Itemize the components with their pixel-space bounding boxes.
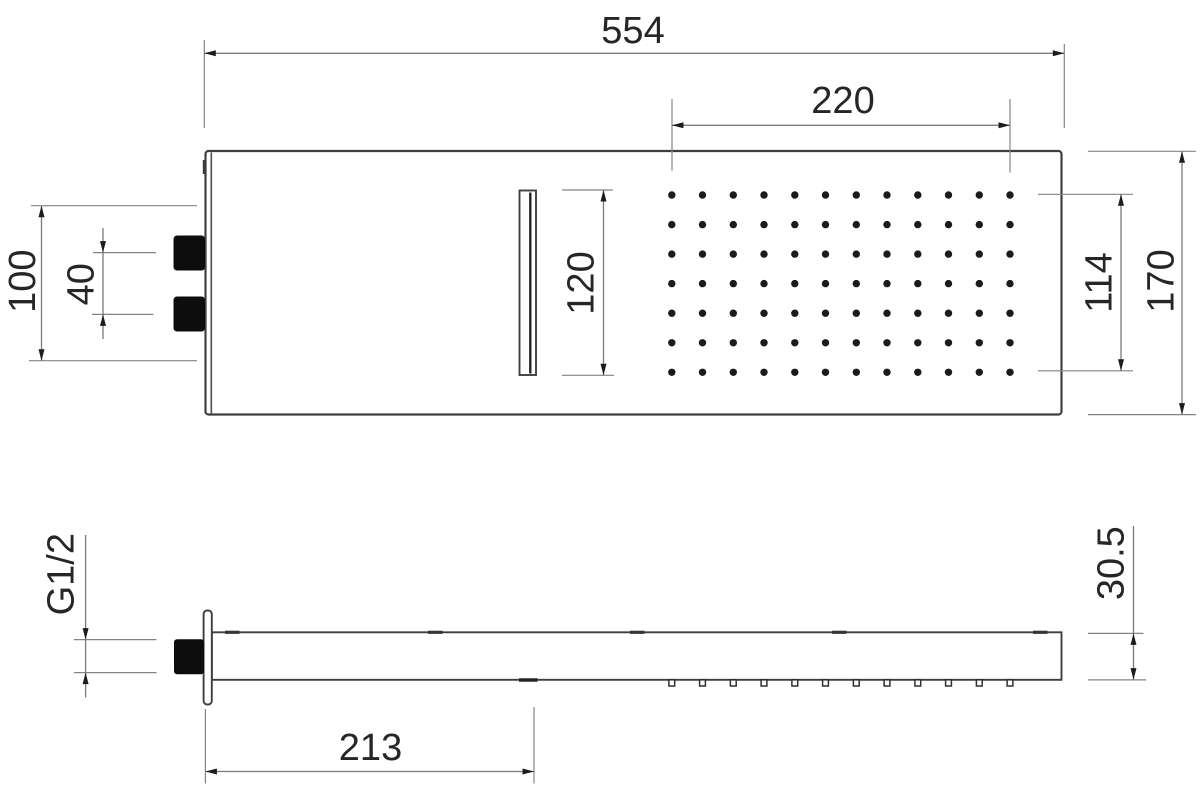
svg-text:554: 554	[601, 10, 664, 52]
svg-text:170: 170	[1140, 249, 1182, 312]
svg-text:114: 114	[1079, 252, 1121, 313]
svg-text:120: 120	[561, 251, 603, 314]
svg-text:220: 220	[811, 80, 874, 122]
svg-text:G1/2: G1/2	[40, 533, 82, 615]
svg-text:213: 213	[339, 727, 402, 769]
svg-text:100: 100	[2, 249, 44, 312]
svg-text:30.5: 30.5	[1090, 526, 1132, 600]
svg-text:40: 40	[61, 263, 103, 305]
